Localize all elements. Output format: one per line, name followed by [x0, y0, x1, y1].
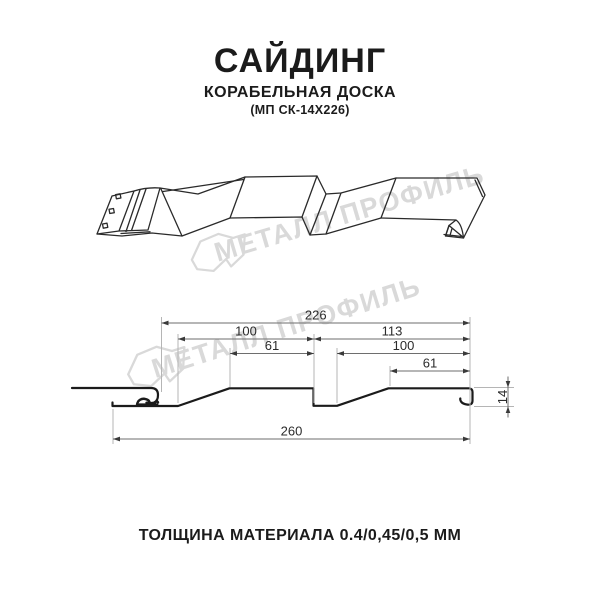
product-sheet: САЙДИНГ КОРАБЕЛЬНАЯ ДОСКА (МП СК-14Х226)…: [0, 0, 600, 600]
dimension-arrow: [506, 381, 511, 388]
dimension-arrow: [506, 407, 511, 414]
profile-outline: [113, 388, 473, 406]
watermark-2: МЕТАЛЛ ПРОФИЛЬ: [125, 271, 425, 389]
dimension-arrow: [178, 337, 185, 342]
dimension-arrow: [307, 337, 314, 342]
dimension-arrow: [463, 437, 470, 442]
dimension-arrow: [390, 369, 397, 374]
dimension-label: 113: [382, 324, 403, 339]
dimension-label: 61: [265, 338, 279, 353]
cross-section-profile: [72, 388, 473, 406]
dimension-label: 226: [305, 308, 327, 323]
dimension-label: 61: [423, 356, 437, 371]
dimension-label: 100: [235, 324, 257, 339]
thickness-note: ТОЛЩИНА МАТЕРИАЛА 0.4/0,45/0,5 ММ: [0, 527, 600, 545]
dimension-arrow: [314, 337, 321, 342]
dimension-label: 14: [495, 390, 510, 404]
technical-drawing-svg: МЕТАЛЛ ПРОФИЛЬ МЕТАЛЛ ПРОФИЛЬ 2261001136…: [0, 0, 600, 600]
dimension-arrow: [337, 351, 344, 356]
dimension-arrow: [162, 321, 169, 326]
dimension-arrow: [463, 369, 470, 374]
dimension-arrow: [307, 351, 314, 356]
dimension-arrow: [463, 337, 470, 342]
dimension-arrow: [463, 351, 470, 356]
dimension-arrow: [113, 437, 120, 442]
dimension-arrow: [463, 321, 470, 326]
dimension-label: 100: [393, 338, 415, 353]
overlap-panel-edge: [72, 388, 158, 403]
dimension-label: 260: [281, 424, 303, 439]
